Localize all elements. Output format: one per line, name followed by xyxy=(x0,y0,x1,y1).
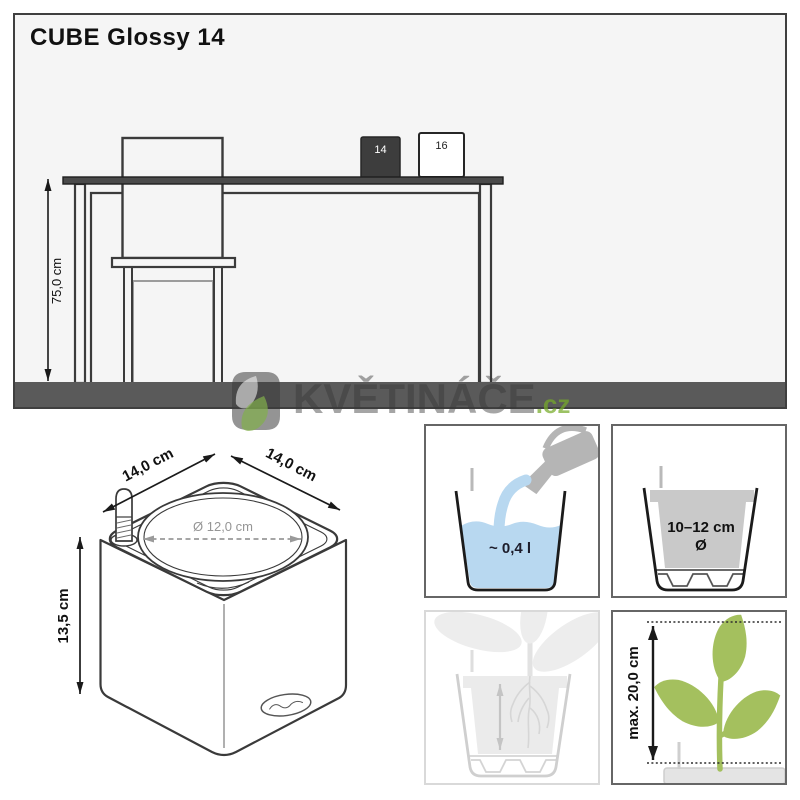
height-dimension: 13,5 cm xyxy=(55,537,80,694)
kvetinace-logo-icon xyxy=(226,370,284,438)
chair xyxy=(112,138,235,383)
water-level-indicator xyxy=(111,489,137,546)
desk-height-dimension-label: 75,0 cm xyxy=(49,258,64,304)
watermark-suffix: .cz xyxy=(536,389,571,419)
desk-height-dimension: 75,0 cm xyxy=(48,179,64,381)
water-volume-box: ~ 0,4 l xyxy=(424,424,600,598)
height-dimension-label: 13,5 cm xyxy=(55,588,72,643)
cube-14-label: 14 xyxy=(374,144,386,156)
watermark: KVĚTINÁČE.cz xyxy=(226,370,570,438)
desk-tabletop xyxy=(63,177,503,184)
watermark-text: KVĚTINÁČE xyxy=(293,375,536,422)
cube-14-on-desk: 14 xyxy=(361,137,400,178)
planter-technical-drawing: Ø 12,0 cm 14,0 cm 14,0 cm 13,5 cm xyxy=(40,438,370,773)
max-plant-height-label: max. 20,0 cm xyxy=(625,646,642,739)
cube-16-on-desk: 16 xyxy=(419,133,464,177)
water-volume-label: ~ 0,4 l xyxy=(489,540,531,557)
inner-pot-box: 10–12 cm Ø xyxy=(611,424,787,598)
separator-platform xyxy=(469,756,558,772)
root-system-box xyxy=(424,610,600,785)
inner-pot-diameter-symbol: Ø xyxy=(695,537,707,554)
cube-16-label: 16 xyxy=(435,140,447,152)
inner-pot-shape xyxy=(463,676,567,754)
plant-height-box: max. 20,0 cm xyxy=(611,610,787,785)
inner-pot-diameter-label: 10–12 cm xyxy=(667,519,735,536)
product-dimensions-image: CUBE Glossy 14 xyxy=(0,0,800,800)
width-dimension-right-label: 14,0 cm xyxy=(263,445,320,485)
opening-diameter-label: Ø 12,0 cm xyxy=(193,519,253,534)
watermark-wordmark: KVĚTINÁČE.cz xyxy=(293,370,570,420)
planter-silhouette xyxy=(664,768,785,783)
room-scene-panel: CUBE Glossy 14 xyxy=(13,13,787,409)
faded-plant-icon xyxy=(430,612,598,683)
plant-icon xyxy=(646,612,785,769)
separator-platform xyxy=(656,570,745,586)
room-scene-drawing: 14 16 75,0 cm xyxy=(15,15,785,407)
